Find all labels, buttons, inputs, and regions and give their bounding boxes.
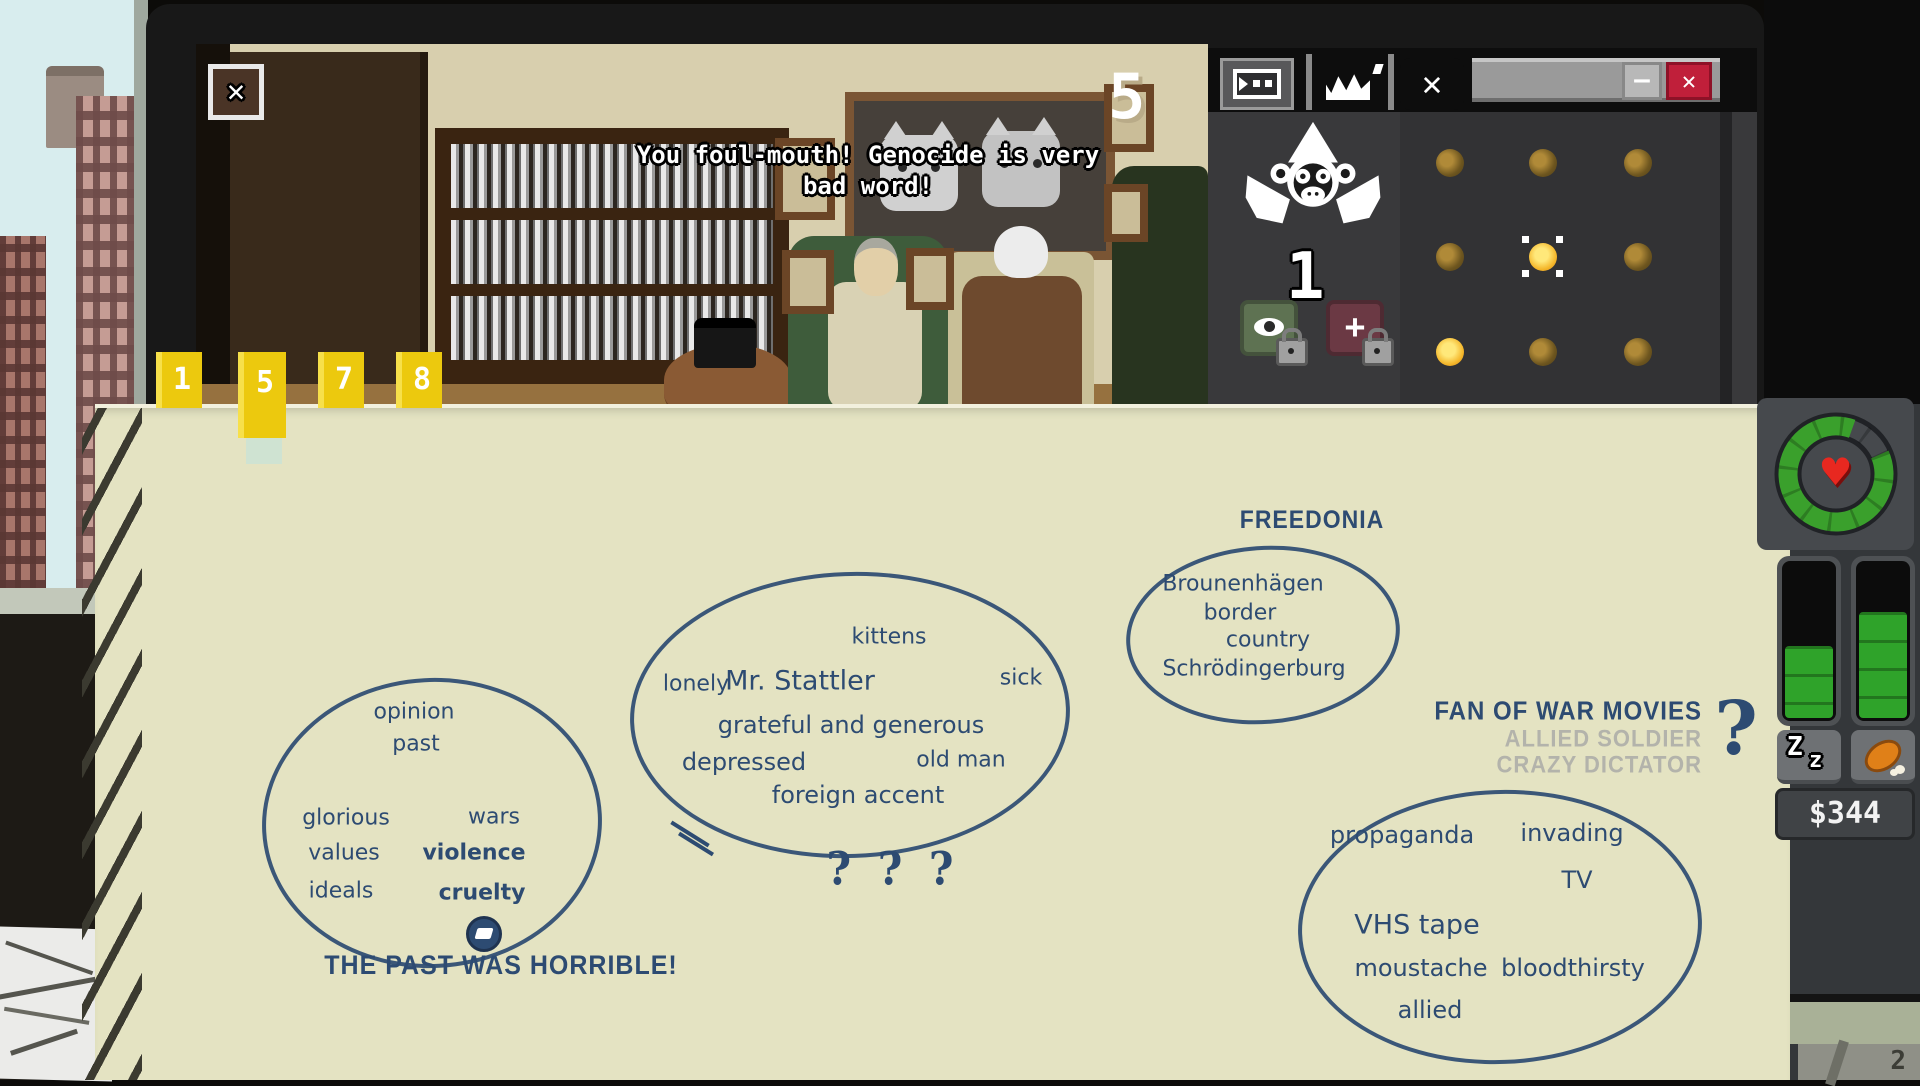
note-word[interactable]: moustache (1354, 954, 1487, 982)
cage-dot[interactable] (1624, 243, 1652, 271)
building-left (0, 236, 46, 588)
mystery-marks: ? ? ? (826, 843, 959, 896)
cage-dot[interactable] (1529, 149, 1557, 177)
note-word[interactable]: Schrödingerburg (1162, 657, 1345, 682)
calendar-digit: 2 (1890, 1046, 1906, 1076)
note-word[interactable]: invading (1520, 819, 1623, 847)
note-word[interactable]: allied (1398, 996, 1463, 1024)
page-tab-5[interactable]: 5 (238, 352, 286, 438)
cage-dot[interactable] (1624, 149, 1652, 177)
crown-icon (1326, 72, 1370, 100)
page-tab-label: 5 (256, 365, 274, 400)
sleep-icon: Z z (1777, 730, 1841, 784)
old-woman-body (962, 276, 1082, 418)
close-icon: ✕ (227, 74, 245, 109)
note-word[interactable]: foreign accent (772, 781, 944, 809)
tab-crown[interactable] (1320, 62, 1386, 106)
tape-shelf-row (451, 220, 773, 284)
add-monkey-button[interactable]: + (1326, 300, 1384, 356)
cage-dot[interactable] (1436, 149, 1464, 177)
tab-cassette[interactable] (1220, 58, 1294, 110)
telephone (694, 318, 756, 368)
crown-tick (1372, 64, 1383, 74)
hypothesis-option[interactable]: ALLIED SOLDIER (1505, 725, 1702, 753)
note-word[interactable]: violence (422, 841, 525, 866)
tab-separator (1388, 54, 1394, 110)
sticky-note (246, 438, 282, 464)
calendar-streak (1825, 1040, 1849, 1086)
dialogue-line: bad word! (568, 171, 1168, 202)
sleep-meter (1777, 556, 1841, 726)
cage-dot[interactable] (1436, 243, 1464, 271)
sketch-scribble (4, 1007, 89, 1025)
conclusion-text: THE PAST WAS HORRIBLE! (324, 950, 677, 981)
close-icon: ✕ (1682, 67, 1696, 95)
monkey-club-logo (1238, 120, 1388, 240)
cage-dot[interactable] (1529, 338, 1557, 366)
dialogue-text: You foul-mouth! Genocide is very bad wor… (568, 140, 1168, 202)
scene-close-button[interactable]: ✕ (208, 64, 264, 120)
heart-icon: ♥ (1757, 450, 1914, 494)
old-man-head (854, 238, 898, 296)
eraser-icon[interactable] (466, 916, 502, 952)
note-word[interactable]: country (1226, 628, 1310, 653)
money-value: $344 (1809, 796, 1881, 831)
cage-dot[interactable] (1436, 338, 1464, 366)
page-tab-7[interactable]: 7 (318, 352, 364, 408)
note-word[interactable]: VHS tape (1354, 910, 1479, 941)
page-tab-label: 7 (335, 362, 353, 397)
lock-icon (1362, 338, 1394, 366)
note-word[interactable]: wars (468, 805, 520, 830)
sleep-z-small: z (1809, 748, 1822, 773)
note-word[interactable]: Brounenhägen (1162, 572, 1323, 597)
health-panel: ♥ (1757, 398, 1914, 550)
hypothesis-option[interactable]: FAN OF WAR MOVIES (1434, 697, 1702, 727)
watch-button[interactable] (1240, 300, 1298, 356)
grid-scrollbar[interactable] (1720, 112, 1732, 424)
note-word[interactable]: propaganda (1330, 821, 1474, 849)
note-word[interactable]: lonely (663, 672, 729, 697)
sketch-scribble (5, 941, 93, 975)
cassette-icon (1233, 69, 1281, 99)
note-word[interactable]: TV (1561, 866, 1592, 894)
note-word[interactable]: opinion (374, 700, 455, 725)
countdown-text: 5 (1108, 60, 1145, 133)
monkey-app-window: ✕ – ✕ 1 + (1208, 48, 1757, 424)
eye-pupil (1264, 321, 1275, 332)
cage-grid (1400, 112, 1728, 424)
sketch-scribble (10, 1029, 78, 1056)
note-word[interactable]: Mr. Stattler (725, 666, 875, 697)
tab-separator (1306, 54, 1312, 110)
note-word[interactable]: old man (916, 748, 1005, 773)
close-button[interactable]: ✕ (1666, 62, 1712, 100)
note-word[interactable]: grateful and generous (718, 711, 984, 739)
food-meter-fill (1859, 612, 1907, 718)
note-word[interactable]: depressed (682, 748, 806, 776)
tab-x[interactable]: ✕ (1400, 58, 1464, 110)
food-meter (1851, 556, 1915, 726)
page-tab-1[interactable]: 1 (156, 352, 202, 408)
shelf-surface (1790, 1002, 1920, 1044)
note-word[interactable]: glorious (302, 806, 390, 831)
eraser-glyph (474, 928, 493, 939)
hud-top-shadow (1764, 0, 1920, 404)
money-display: $344 (1775, 788, 1915, 840)
minimize-button[interactable]: – (1622, 62, 1662, 100)
cage-dot[interactable] (1529, 243, 1557, 271)
note-word[interactable]: cruelty (439, 881, 526, 906)
sleep-z-big: Z (1787, 732, 1803, 762)
note-word[interactable]: border (1204, 601, 1277, 626)
picture-frame (782, 250, 834, 314)
spiral-binding (82, 408, 142, 1080)
sleep-meter-fill (1785, 646, 1833, 718)
page-tab-label: 1 (173, 362, 191, 397)
note-word[interactable]: values (308, 841, 380, 866)
note-word[interactable]: kittens (851, 625, 926, 650)
page-tab-8[interactable]: 8 (396, 352, 442, 408)
old-woman-head (994, 226, 1048, 278)
note-word[interactable]: past (392, 732, 440, 757)
note-word[interactable]: bloodthirsty (1501, 954, 1645, 982)
note-word[interactable]: ideals (309, 879, 374, 904)
hypothesis-option[interactable]: CRAZY DICTATOR (1497, 751, 1702, 779)
minimize-icon: – (1634, 65, 1650, 95)
note-word[interactable]: sick (1000, 666, 1042, 691)
desk-calendar[interactable]: 2 (1798, 1044, 1920, 1080)
group-label-freedonia: FREEDONIA (1240, 505, 1384, 534)
lock-icon (1276, 338, 1308, 366)
shelf-edge (1790, 994, 1920, 1002)
hypothesis-question-mark: ? (1706, 686, 1766, 772)
page-tab-label: 8 (413, 362, 431, 397)
picture-frame (906, 248, 954, 310)
cage-dot[interactable] (1624, 338, 1652, 366)
drumstick-icon (1851, 730, 1915, 784)
x-icon: ✕ (1422, 64, 1442, 104)
dialogue-line: You foul-mouth! Genocide is very (568, 140, 1168, 171)
